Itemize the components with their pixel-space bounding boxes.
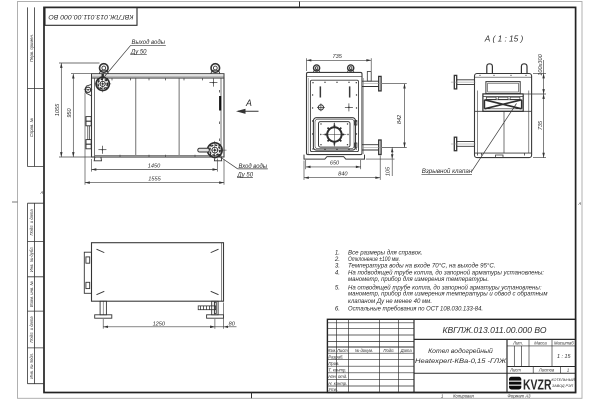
- svg-text:Масса: Масса: [534, 340, 547, 345]
- svg-text:манометр, прибор для измерения: манометр, прибор для измерения температу…: [348, 290, 548, 297]
- svg-text:Вход воды: Вход воды: [239, 164, 268, 170]
- svg-text:Heatexpert-КВа-0,15 -ГЛЖ: Heatexpert-КВа-0,15 -ГЛЖ: [415, 358, 507, 365]
- svg-text:Лист: Лист: [336, 348, 348, 353]
- svg-text:Перв. примен.: Перв. примен.: [29, 34, 34, 62]
- svg-text:А: А: [578, 201, 582, 206]
- svg-text:735: 735: [538, 120, 544, 130]
- svg-text:Ду 50: Ду 50: [130, 50, 147, 56]
- svg-text:80: 80: [229, 321, 236, 327]
- svg-text:Котел водогрейный: Котел водогрейный: [428, 347, 493, 355]
- svg-text:1055: 1055: [55, 103, 61, 116]
- svg-text:Лист: Лист: [509, 368, 521, 373]
- svg-text:Справ. №: Справ. №: [29, 118, 34, 137]
- svg-text:842: 842: [397, 114, 403, 124]
- svg-text:650: 650: [330, 161, 340, 167]
- svg-text:KVZR: KVZR: [523, 378, 552, 394]
- svg-text:Взам. инв. №: Взам. инв. №: [29, 281, 34, 307]
- svg-text:1450: 1450: [148, 163, 161, 169]
- svg-text:1 : 15: 1 : 15: [557, 354, 571, 360]
- svg-text:КВГЛЖ.013.011.00.000 ВО: КВГЛЖ.013.011.00.000 ВО: [48, 13, 134, 20]
- svg-text:Листов: Листов: [538, 368, 555, 373]
- svg-text:Н. контр.: Н. контр.: [328, 381, 347, 386]
- svg-text:манометр, прибор для измерения: манометр, прибор для измерения температу…: [348, 276, 489, 283]
- svg-text:Копировал: Копировал: [453, 393, 474, 398]
- svg-text:3.: 3.: [335, 262, 340, 269]
- svg-text:А: А: [40, 190, 44, 195]
- svg-text:950: 950: [67, 107, 73, 117]
- svg-text:4.: 4.: [335, 270, 340, 277]
- svg-text:Подп. и дата: Подп. и дата: [29, 209, 34, 236]
- svg-text:клапаном Ду не менее 40 мм.: клапаном Ду не менее 40 мм.: [348, 298, 432, 305]
- svg-text:Выход воды: Выход воды: [132, 40, 166, 46]
- svg-text:ЗАВОД РЭП: ЗАВОД РЭП: [552, 384, 573, 388]
- svg-text:КОТЕЛЬНЫЙ: КОТЕЛЬНЫЙ: [551, 378, 575, 382]
- svg-text:Лит.: Лит.: [512, 340, 523, 345]
- svg-text:Остальные требования по ОСТ 10: Остальные требования по ОСТ 108.030.133-…: [348, 305, 483, 312]
- svg-text:А: А: [245, 98, 252, 108]
- svg-text:100х300: 100х300: [538, 53, 544, 75]
- svg-text:Масштаб: Масштаб: [554, 340, 574, 345]
- svg-text:Дата: Дата: [400, 348, 413, 353]
- svg-text:Подп.: Подп.: [383, 348, 394, 353]
- svg-text:А ( 1 : 15 ): А ( 1 : 15 ): [484, 34, 524, 43]
- svg-text:Подп. и дата: Подп. и дата: [29, 316, 34, 343]
- svg-text:Инв. № дубл.: Инв. № дубл.: [29, 246, 34, 272]
- svg-text:Пров.: Пров.: [328, 361, 339, 366]
- svg-text:6.: 6.: [335, 305, 340, 312]
- svg-text:1555: 1555: [148, 177, 161, 183]
- svg-text:1: 1: [441, 393, 443, 398]
- svg-text:Изм.: Изм.: [327, 348, 336, 353]
- svg-text:Разраб.: Разраб.: [328, 354, 343, 359]
- svg-text:5.: 5.: [335, 284, 340, 291]
- svg-text:105: 105: [385, 166, 391, 176]
- svg-text:Утв.: Утв.: [328, 387, 338, 392]
- svg-text:Ду 50: Ду 50: [237, 172, 254, 178]
- svg-text:КВГЛЖ.013.011.00.000 ВО: КВГЛЖ.013.011.00.000 ВО: [443, 326, 547, 335]
- svg-text:Температура воды на входе 70°С: Температура воды на входе 70°С, на выход…: [348, 262, 496, 269]
- svg-text:735: 735: [333, 54, 343, 60]
- svg-text:Нач. отд.: Нач. отд.: [328, 374, 347, 379]
- svg-text:Формат А3: Формат А3: [508, 393, 532, 398]
- svg-text:1: 1: [567, 368, 569, 373]
- svg-text:840: 840: [338, 172, 348, 178]
- svg-text:Инв. № подл.: Инв. № подл.: [29, 353, 34, 379]
- svg-text:№ докум.: № докум.: [355, 348, 373, 353]
- svg-text:Т. контр.: Т. контр.: [328, 368, 346, 373]
- svg-text:1250: 1250: [153, 321, 166, 327]
